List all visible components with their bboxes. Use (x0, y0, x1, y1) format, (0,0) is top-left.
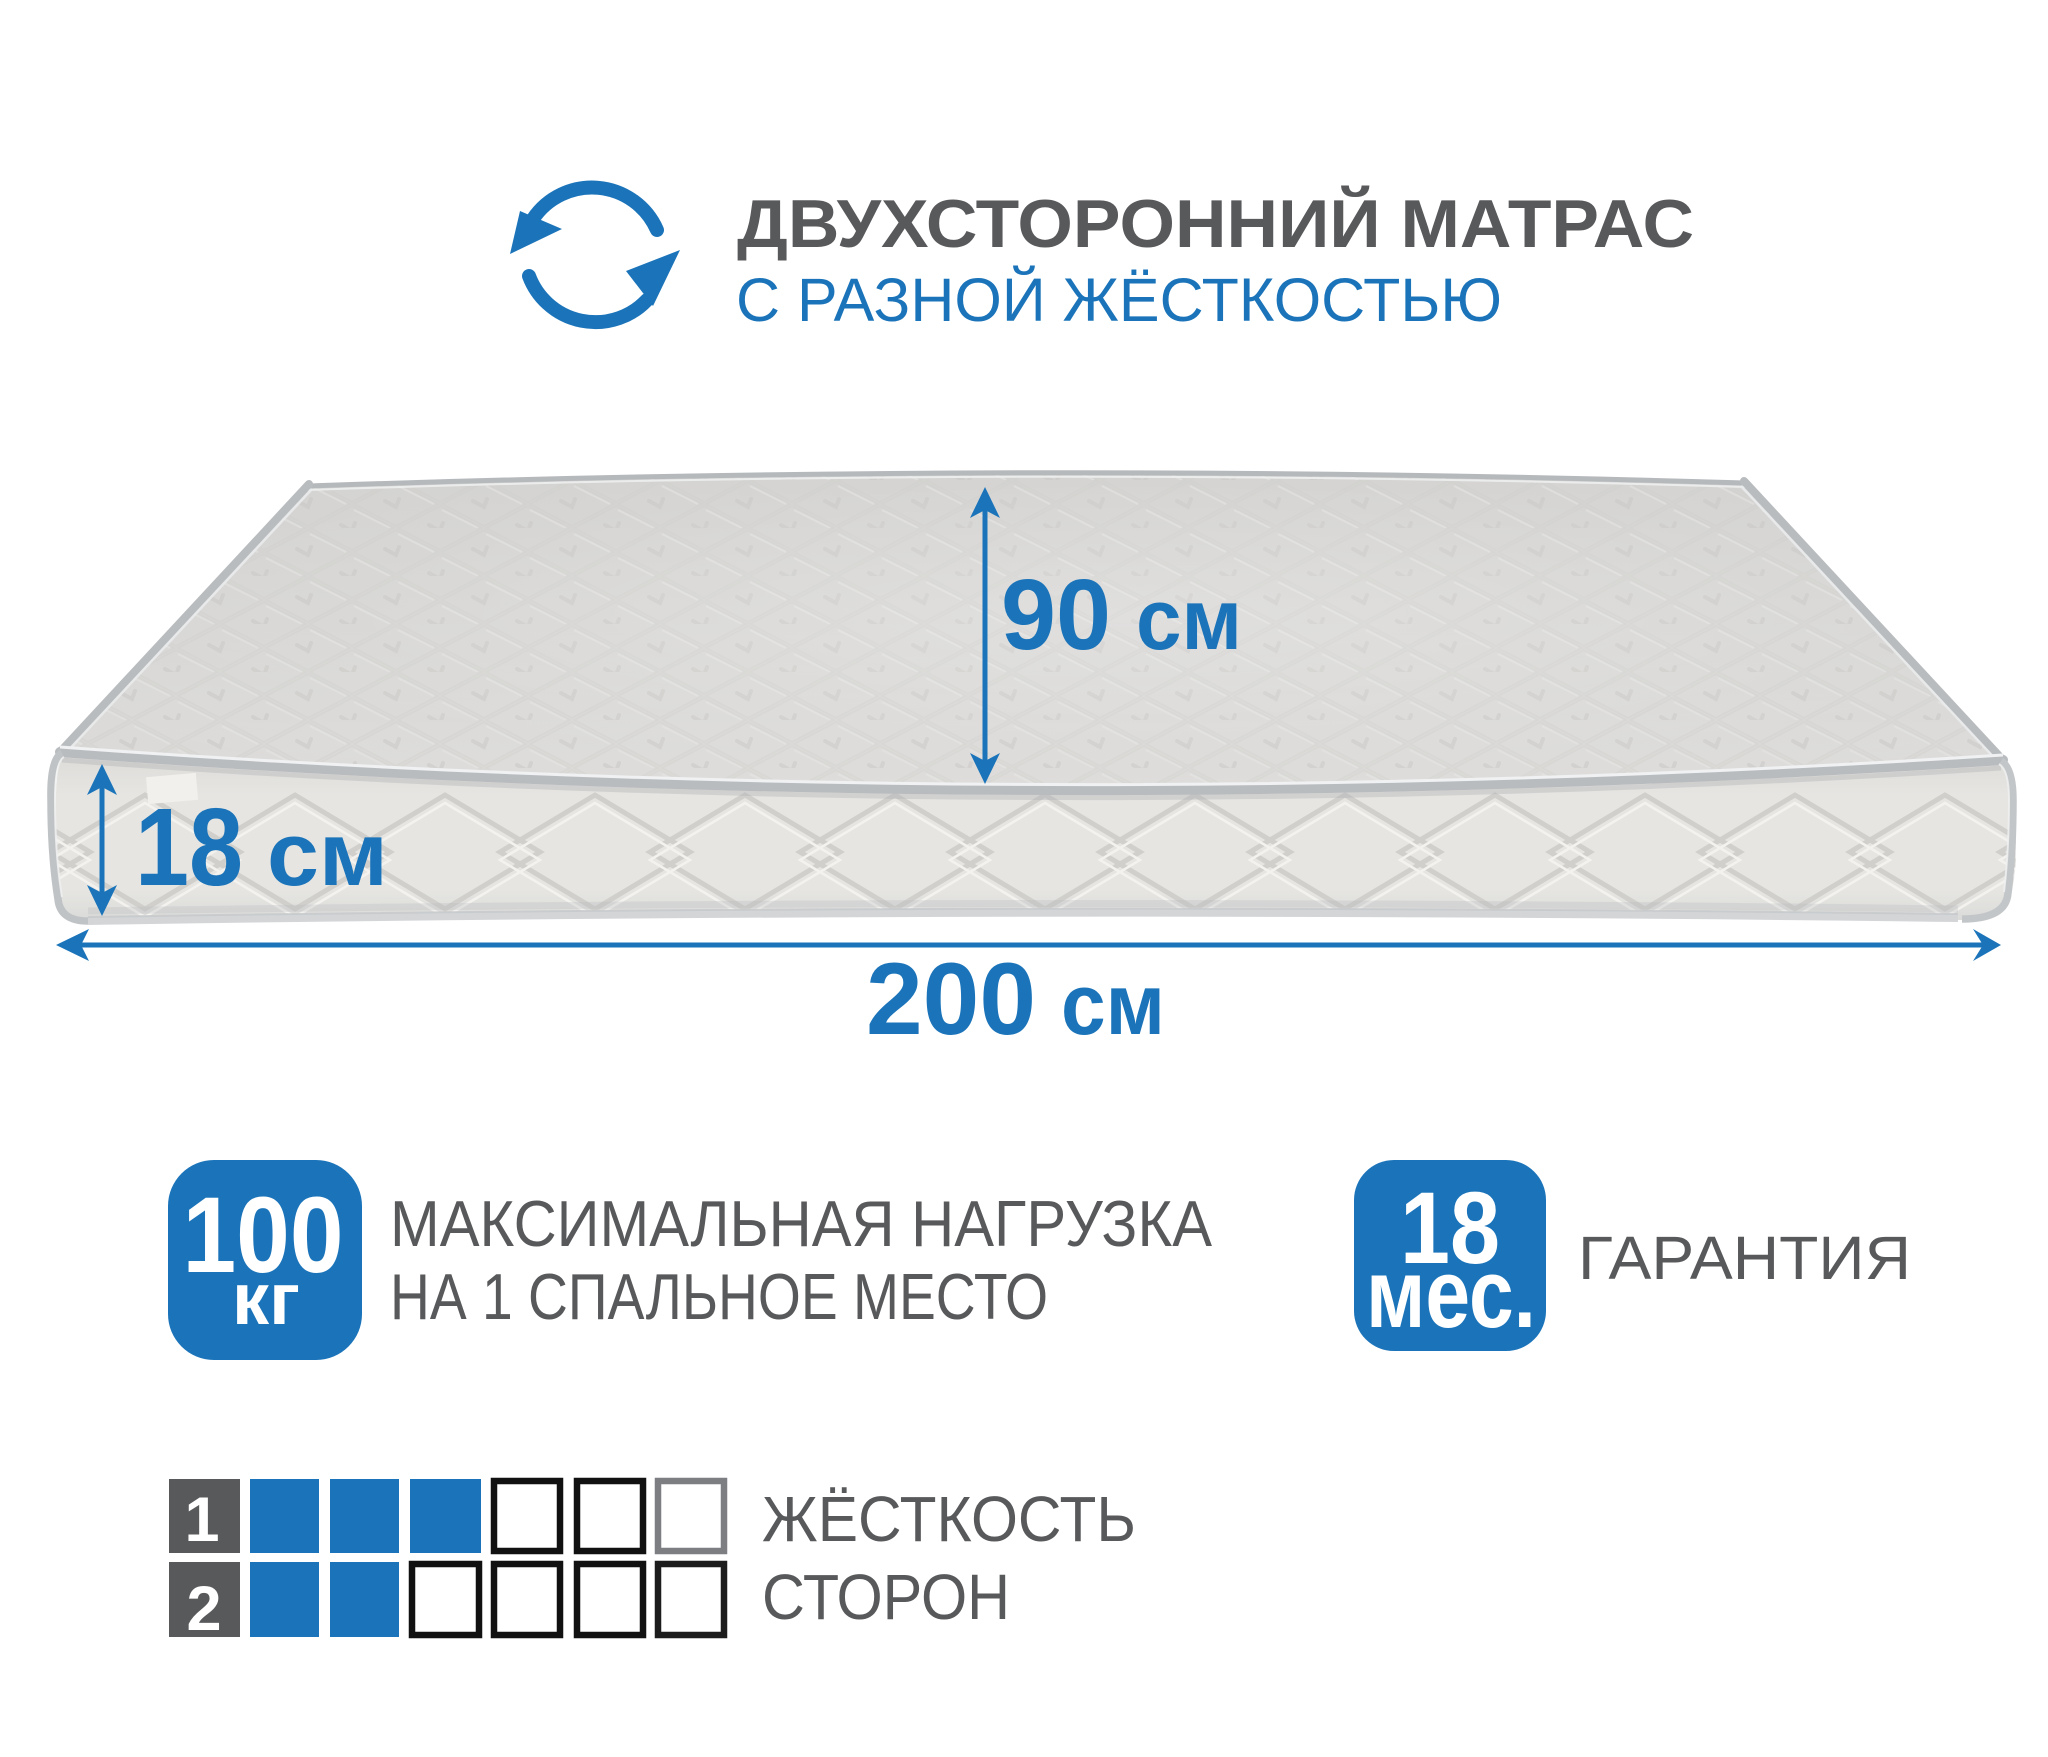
svg-text:С РАЗНОЙ ЖЁСТКОСТЬЮ: С РАЗНОЙ ЖЁСТКОСТЬЮ (736, 265, 1502, 334)
svg-text:см: см (1061, 957, 1165, 1053)
svg-text:18: 18 (135, 786, 243, 909)
svg-text:мес.: мес. (1366, 1239, 1536, 1348)
svg-text:см: см (1136, 572, 1242, 668)
svg-text:см: см (267, 805, 388, 905)
svg-text:ГАРАНТИЯ: ГАРАНТИЯ (1578, 1224, 1911, 1293)
svg-text:СТОРОН: СТОРОН (762, 1561, 1010, 1633)
svg-text:200: 200 (866, 942, 1036, 1056)
svg-text:1: 1 (184, 1485, 219, 1555)
svg-text:ДВУХСТОРОННИЙ МАТРАС: ДВУХСТОРОННИЙ МАТРАС (737, 185, 1694, 262)
svg-text:кг: кг (232, 1259, 300, 1340)
svg-text:90: 90 (1001, 559, 1111, 671)
svg-text:МАКСИМАЛЬНАЯ НАГРУЗКА: МАКСИМАЛЬНАЯ НАГРУЗКА (390, 1187, 1213, 1260)
svg-text:ЖЁСТКОСТЬ: ЖЁСТКОСТЬ (762, 1483, 1136, 1555)
svg-text:2: 2 (186, 1574, 221, 1644)
svg-text:НА 1 СПАЛЬНОЕ МЕСТО: НА 1 СПАЛЬНОЕ МЕСТО (390, 1260, 1048, 1333)
